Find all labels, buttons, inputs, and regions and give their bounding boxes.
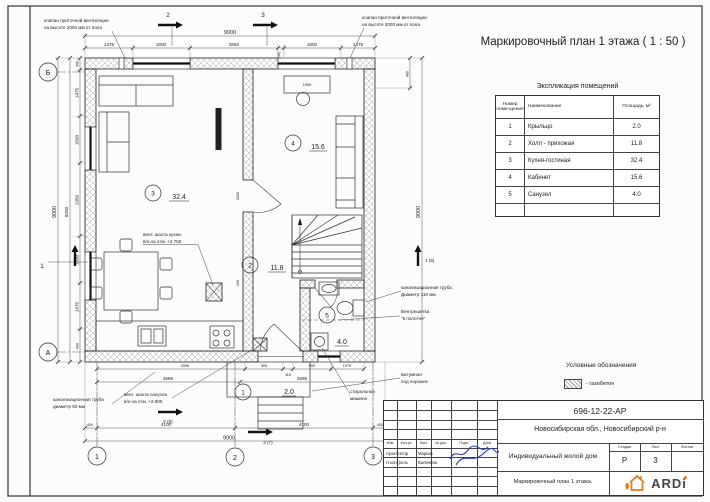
- svg-text:400: 400: [76, 343, 80, 349]
- svg-text:клапан приточной вентиляции: клапан приточной вентиляции: [44, 17, 109, 23]
- explication-header: Номер поме-щения Наименование Площадь, м…: [496, 96, 659, 118]
- axis-row-b: Б: [46, 70, 51, 77]
- sheet-label: Лист: [640, 445, 671, 449]
- title-block: Изм. Кол.уч. Лист № док. Подп. Дата Архи…: [383, 400, 704, 496]
- svg-text:2: 2: [166, 12, 170, 19]
- svg-text:1: 1: [40, 263, 44, 270]
- staircase: [292, 215, 362, 278]
- doc-number: 696-12-22-АР: [497, 406, 703, 416]
- svg-text:канализационная труба: канализационная труба: [53, 397, 104, 402]
- svg-text:2095: 2095: [181, 364, 189, 368]
- sheets-label: Листов: [671, 445, 703, 449]
- svg-text:1 (5): 1 (5): [425, 258, 435, 263]
- svg-text:под порожек: под порожек: [401, 379, 429, 384]
- axis-row-a: А: [46, 350, 51, 357]
- svg-text:3: 3: [261, 12, 265, 19]
- svg-text:1500: 1500: [75, 134, 80, 145]
- vent-shafts: [206, 283, 267, 351]
- svg-text:900: 900: [309, 364, 315, 368]
- section-marks: 2 3 1 1 (5) 2 (6) 3 (7): [40, 12, 435, 445]
- legend-item: - газобетон: [564, 379, 614, 389]
- architect-name: Марков: [418, 451, 433, 456]
- house-icon: [625, 473, 647, 493]
- col-header-area: Площадь, м²: [614, 96, 659, 118]
- dim-top-overall: 9000: [224, 30, 236, 36]
- role-architect: Архитектор: [386, 451, 408, 456]
- svg-text:9000: 9000: [223, 436, 235, 442]
- axis-col-3: 3: [371, 454, 375, 461]
- svg-text:на высоте 2000 мм от пола: на высоте 2000 мм от пола: [44, 25, 102, 30]
- svg-text:на высоте 2000 мм от пола: на высоте 2000 мм от пола: [362, 22, 420, 27]
- signature-scribbles: [444, 441, 502, 469]
- porch-steps: [227, 362, 310, 429]
- svg-text:4.0: 4.0: [337, 339, 347, 346]
- svg-text:в/о на отм. +2.750: в/о на отм. +2.750: [143, 239, 182, 244]
- col-list: Лист: [416, 441, 431, 445]
- svg-text:400: 400: [76, 61, 80, 67]
- table-row: 5 Санузел 4.0: [496, 186, 659, 203]
- interior-walls: [243, 69, 364, 351]
- svg-text:3 (7): 3 (7): [263, 440, 273, 445]
- svg-text:в/о на отм. +2.900: в/о на отм. +2.900: [124, 399, 163, 404]
- svg-text:1950: 1950: [303, 83, 311, 87]
- svg-text:2: 2: [248, 262, 252, 269]
- exterior-walls: [85, 58, 375, 362]
- svg-text:1475: 1475: [75, 87, 80, 98]
- svg-text:15.6: 15.6: [311, 144, 325, 151]
- svg-text:"в полотне": "в полотне": [401, 316, 426, 321]
- sheet-title: Маркировочный план 1 этажа ( 1 : 50 ): [458, 36, 708, 48]
- svg-text:1475: 1475: [75, 301, 80, 312]
- table-row: 4 Кабинет 15.6: [496, 169, 659, 186]
- col-izm: Изм.: [384, 441, 397, 445]
- svg-text:1475: 1475: [353, 42, 364, 47]
- table-row: 1 Крыльцо 2.0: [496, 118, 659, 135]
- svg-text:вент. шахта санузла: вент. шахта санузла: [124, 392, 167, 397]
- svg-text:480: 480: [406, 71, 410, 77]
- svg-text:Диаметр 110 мм: Диаметр 110 мм: [401, 292, 436, 297]
- axis-col-2: 2: [233, 455, 237, 462]
- svg-text:канализационная труба: канализационная труба: [401, 285, 452, 290]
- svg-text:9000: 9000: [416, 206, 422, 218]
- svg-text:400: 400: [236, 280, 240, 286]
- svg-text:2000: 2000: [236, 192, 240, 200]
- svg-text:4585: 4585: [163, 376, 174, 381]
- gazobeton-hatch-swatch: [564, 379, 582, 389]
- svg-text:115: 115: [285, 373, 291, 377]
- stage-value: Р: [609, 456, 640, 465]
- explication-title: Экспликация помещений: [495, 83, 660, 90]
- svg-text:4: 4: [291, 140, 295, 147]
- svg-text:2 (6): 2 (6): [163, 419, 173, 424]
- table-row-empty: [496, 203, 659, 216]
- svg-text:2650: 2650: [229, 42, 240, 47]
- legend-item-label: - газобетон: [586, 381, 614, 387]
- col-header-number: Номер поме-щения: [496, 96, 525, 118]
- svg-text:1: 1: [241, 389, 245, 396]
- svg-text:400: 400: [87, 423, 93, 427]
- drawing-name: Маркировочный план 1 этажа.: [497, 479, 609, 485]
- svg-text:1800: 1800: [307, 42, 318, 47]
- svg-text:2695: 2695: [297, 376, 308, 381]
- svg-text:300: 300: [261, 364, 267, 368]
- svg-text:машина: машина: [350, 396, 368, 401]
- explication-table: Номер поме-щения Наименование Площадь, м…: [495, 95, 660, 217]
- svg-text:8200: 8200: [64, 206, 69, 217]
- svg-text:5: 5: [325, 312, 329, 319]
- table-row: 2 Холл - прихожая 11.8: [496, 135, 659, 152]
- ncontrol-name: Баленева: [418, 460, 437, 465]
- svg-text:2.0: 2.0: [284, 389, 294, 396]
- svg-text:32.4: 32.4: [172, 194, 186, 201]
- furniture: [90, 76, 364, 351]
- svg-text:(40): (40): [277, 51, 281, 58]
- project-location: Новосибирская обл., Новосибирский р-н: [497, 426, 703, 433]
- svg-text:клапан приточной вентиляции: клапан приточной вентиляции: [362, 14, 427, 20]
- svg-text:3: 3: [151, 190, 155, 197]
- svg-text:1800: 1800: [156, 42, 167, 47]
- legend-title: Условные обозначения: [566, 362, 676, 369]
- logo-i-dot: [684, 476, 687, 479]
- svg-text:диаметр 50 мм: диаметр 50 мм: [53, 404, 85, 409]
- svg-text:9000: 9000: [52, 206, 58, 218]
- drawing-sheet: 9000 1475 1800 2650 (40) 1800 1475 9000 …: [0, 0, 710, 502]
- col-koluch: Кол.уч.: [397, 441, 416, 445]
- svg-text:1475: 1475: [104, 42, 115, 47]
- svg-text:2350: 2350: [75, 194, 80, 205]
- sheet-number: 3: [640, 456, 671, 465]
- col-header-name: Наименование: [525, 96, 614, 118]
- svg-text:Вентрешетка: Вентрешетка: [401, 309, 430, 314]
- svg-text:вент. шахта кухни: вент. шахта кухни: [143, 232, 181, 237]
- axis-col-1: 1: [95, 454, 99, 461]
- svg-text:Битумная: Битумная: [401, 372, 422, 377]
- doors: [253, 180, 337, 351]
- object-name: Индивидуальный жилой дом: [497, 453, 609, 460]
- ardi-logo: ARDi: [609, 471, 703, 495]
- ardi-logo-text: ARDi: [651, 476, 687, 491]
- stage-label: Стадия: [609, 445, 640, 449]
- svg-text:4100: 4100: [299, 422, 310, 427]
- svg-text:11.8: 11.8: [270, 265, 283, 272]
- svg-text:стиральная: стиральная: [350, 389, 375, 394]
- role-ncontrol: Н.контроль: [386, 460, 408, 465]
- svg-text:1075: 1075: [343, 364, 351, 368]
- table-row: 3 Кухня-гостиная 32.4: [496, 152, 659, 169]
